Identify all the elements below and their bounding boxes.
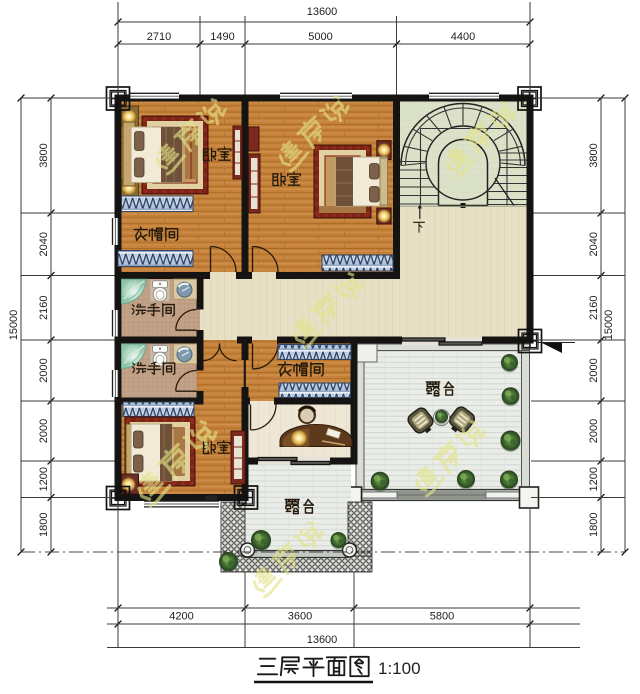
svg-text:1200: 1200 xyxy=(588,467,600,491)
svg-text:4400: 4400 xyxy=(451,31,475,43)
svg-text:3600: 3600 xyxy=(288,611,312,623)
svg-text:1:100: 1:100 xyxy=(378,659,421,678)
svg-text:1800: 1800 xyxy=(588,513,600,537)
svg-text:5000: 5000 xyxy=(308,31,332,43)
svg-text:4200: 4200 xyxy=(169,611,193,623)
svg-text:2710: 2710 xyxy=(147,31,171,43)
svg-text:2160: 2160 xyxy=(38,296,50,320)
svg-text:13600: 13600 xyxy=(307,6,338,18)
svg-text:2000: 2000 xyxy=(38,419,50,443)
svg-text:2040: 2040 xyxy=(588,232,600,256)
svg-text:3800: 3800 xyxy=(588,143,600,167)
svg-text:1490: 1490 xyxy=(210,31,234,43)
svg-text:1800: 1800 xyxy=(38,513,50,537)
svg-text:13600: 13600 xyxy=(307,634,338,646)
svg-text:2000: 2000 xyxy=(588,358,600,382)
svg-text:2160: 2160 xyxy=(588,296,600,320)
svg-text:2000: 2000 xyxy=(38,358,50,382)
svg-text:3800: 3800 xyxy=(38,143,50,167)
svg-text:1200: 1200 xyxy=(38,467,50,491)
svg-text:2040: 2040 xyxy=(38,232,50,256)
svg-text:2000: 2000 xyxy=(588,419,600,443)
svg-text:5800: 5800 xyxy=(430,611,454,623)
svg-text:15000: 15000 xyxy=(603,310,615,341)
svg-text:15000: 15000 xyxy=(8,310,20,341)
